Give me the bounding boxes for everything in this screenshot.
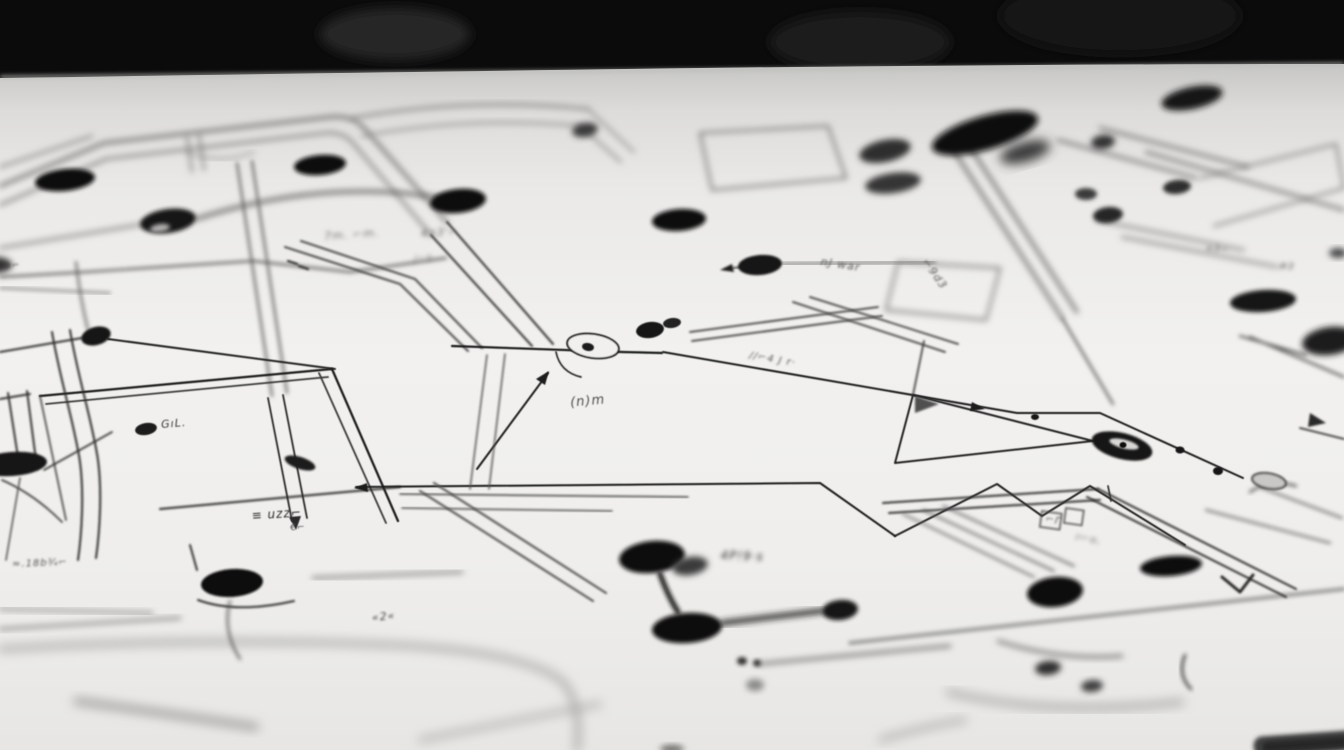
bokeh-blob bbox=[320, 8, 470, 60]
ink-dot bbox=[753, 660, 761, 667]
annotation-scribble: ≡⌐ bbox=[3, 261, 20, 272]
annotation-scribble: ≈.18b¾⌐ bbox=[12, 557, 68, 570]
blueprint-photo: 7m. ⌐m.4n3'⌐J⌐bnJ war⌐9d3o3⌐ø3GıL.(n)m≡ … bbox=[0, 0, 1344, 750]
ink-dot bbox=[1213, 467, 1223, 475]
annotation-scribble: 4P!9·s bbox=[720, 548, 764, 564]
annotation-scribble: €⌐ bbox=[289, 523, 306, 534]
ink-dot bbox=[1075, 188, 1097, 200]
annotation-scribble: 4n3'⌐ bbox=[420, 225, 459, 240]
ink-dot bbox=[1031, 414, 1039, 420]
ink-dot bbox=[737, 657, 747, 665]
annotation-scribble: «2« bbox=[371, 609, 396, 624]
ink-dot bbox=[1176, 447, 1185, 454]
floorplan-photo-canvas: 7m. ⌐m.4n3'⌐J⌐bnJ war⌐9d3o3⌐ø3GıL.(n)m≡ … bbox=[0, 0, 1344, 750]
paper-sheet bbox=[0, 64, 1344, 750]
annotation-scribble: (n)m bbox=[570, 393, 606, 411]
annotation-scribble: J⌐b bbox=[412, 254, 433, 265]
annotation-scribble: ø3 bbox=[1278, 260, 1295, 273]
blueprint-photo-frame: 7m. ⌐m.4n3'⌐J⌐bnJ war⌐9d3o3⌐ø3GıL.(n)m≡ … bbox=[0, 0, 1344, 750]
annotation-scribble: GıL. bbox=[161, 416, 187, 431]
eye-mark bbox=[1120, 442, 1127, 448]
bokeh-blob bbox=[770, 12, 950, 72]
ink-dot bbox=[746, 679, 764, 691]
